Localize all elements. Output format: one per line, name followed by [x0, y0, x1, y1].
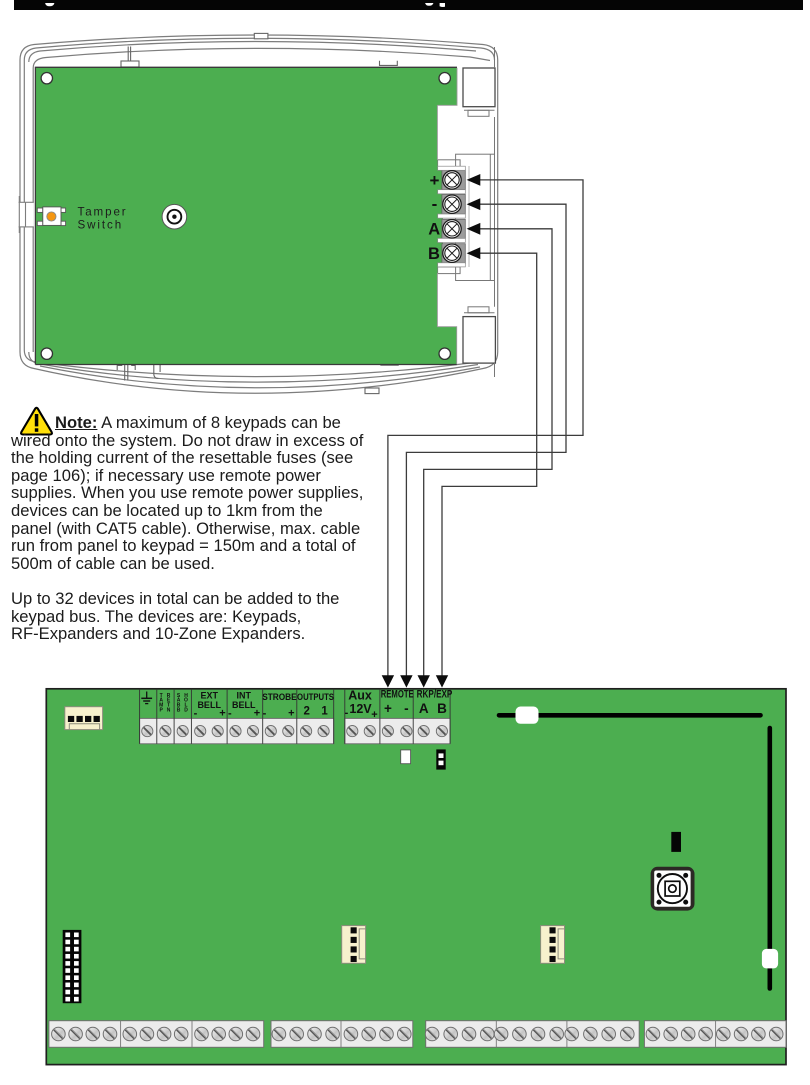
svg-text:Aux: Aux — [348, 689, 372, 703]
svg-text:2: 2 — [303, 706, 309, 718]
svg-text:B: B — [428, 245, 440, 263]
svg-text:Switch: Switch — [78, 219, 124, 232]
svg-text:+: + — [288, 707, 294, 719]
svg-text:D: D — [184, 707, 188, 713]
svg-text:-: - — [194, 707, 198, 719]
svg-text:+: + — [254, 707, 260, 719]
svg-text:INT: INT — [237, 691, 252, 701]
svg-text:+: + — [430, 171, 440, 190]
svg-text:B: B — [437, 701, 447, 716]
svg-text:N: N — [167, 707, 171, 713]
svg-text:OUTPUTS: OUTPUTS — [297, 691, 334, 702]
svg-text:Tamper: Tamper — [78, 205, 128, 218]
svg-text:-: - — [404, 701, 409, 716]
svg-text:STROBE: STROBE — [262, 692, 297, 702]
svg-text:REMOTE: REMOTE — [381, 688, 414, 701]
svg-text:-: - — [263, 707, 267, 719]
svg-text:-: - — [345, 707, 349, 719]
svg-text:+: + — [371, 709, 377, 721]
svg-text:-: - — [432, 194, 438, 213]
svg-text:B: B — [177, 707, 181, 713]
svg-text:A: A — [419, 701, 429, 716]
svg-text:+: + — [384, 701, 392, 716]
svg-text:RKP/EXP: RKP/EXP — [417, 688, 453, 701]
svg-text:EXT: EXT — [200, 691, 218, 701]
svg-text:A: A — [428, 221, 440, 239]
svg-text:BELL: BELL — [197, 700, 221, 710]
svg-text:12V: 12V — [349, 702, 372, 716]
svg-text:+: + — [219, 707, 225, 719]
svg-text:BELL: BELL — [232, 700, 256, 710]
svg-text:-: - — [228, 707, 232, 719]
svg-text:1: 1 — [321, 706, 328, 718]
